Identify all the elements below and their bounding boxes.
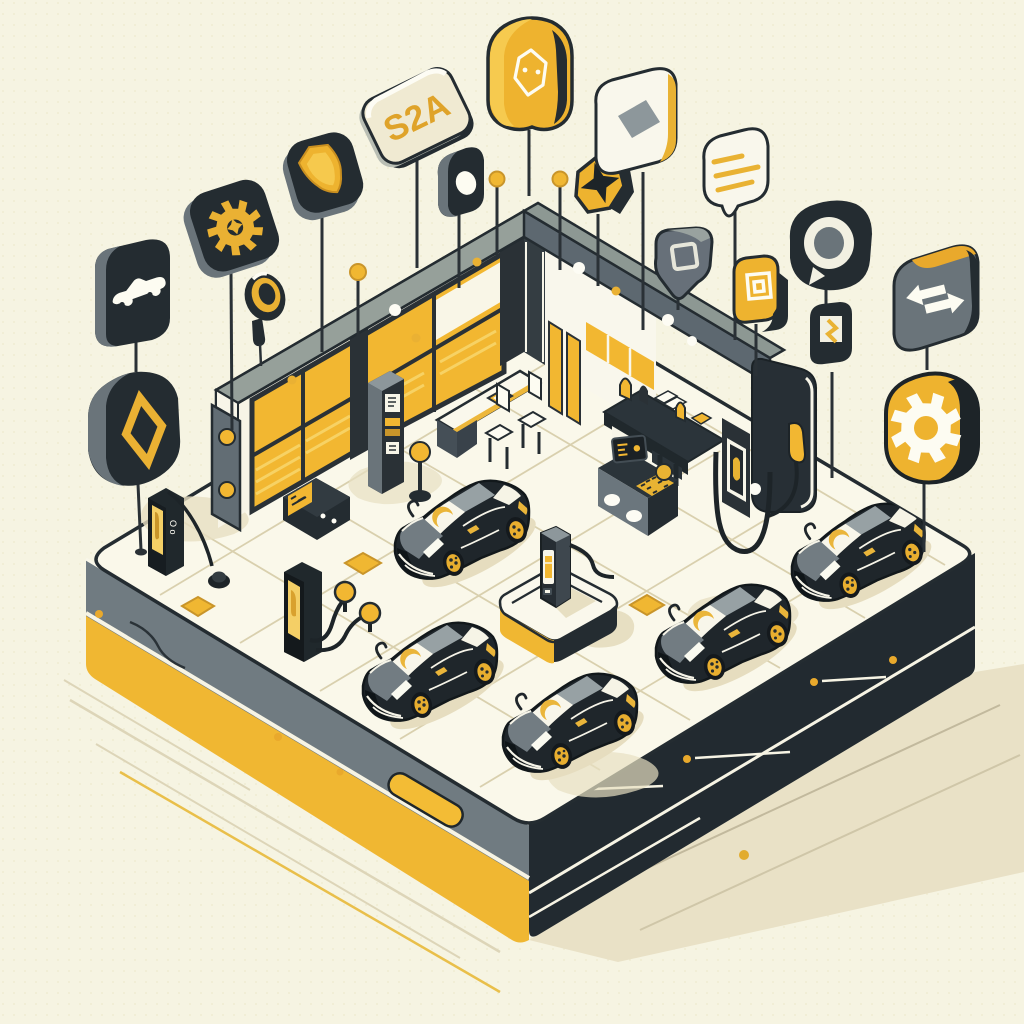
svg-text:O o: O o xyxy=(168,520,178,535)
